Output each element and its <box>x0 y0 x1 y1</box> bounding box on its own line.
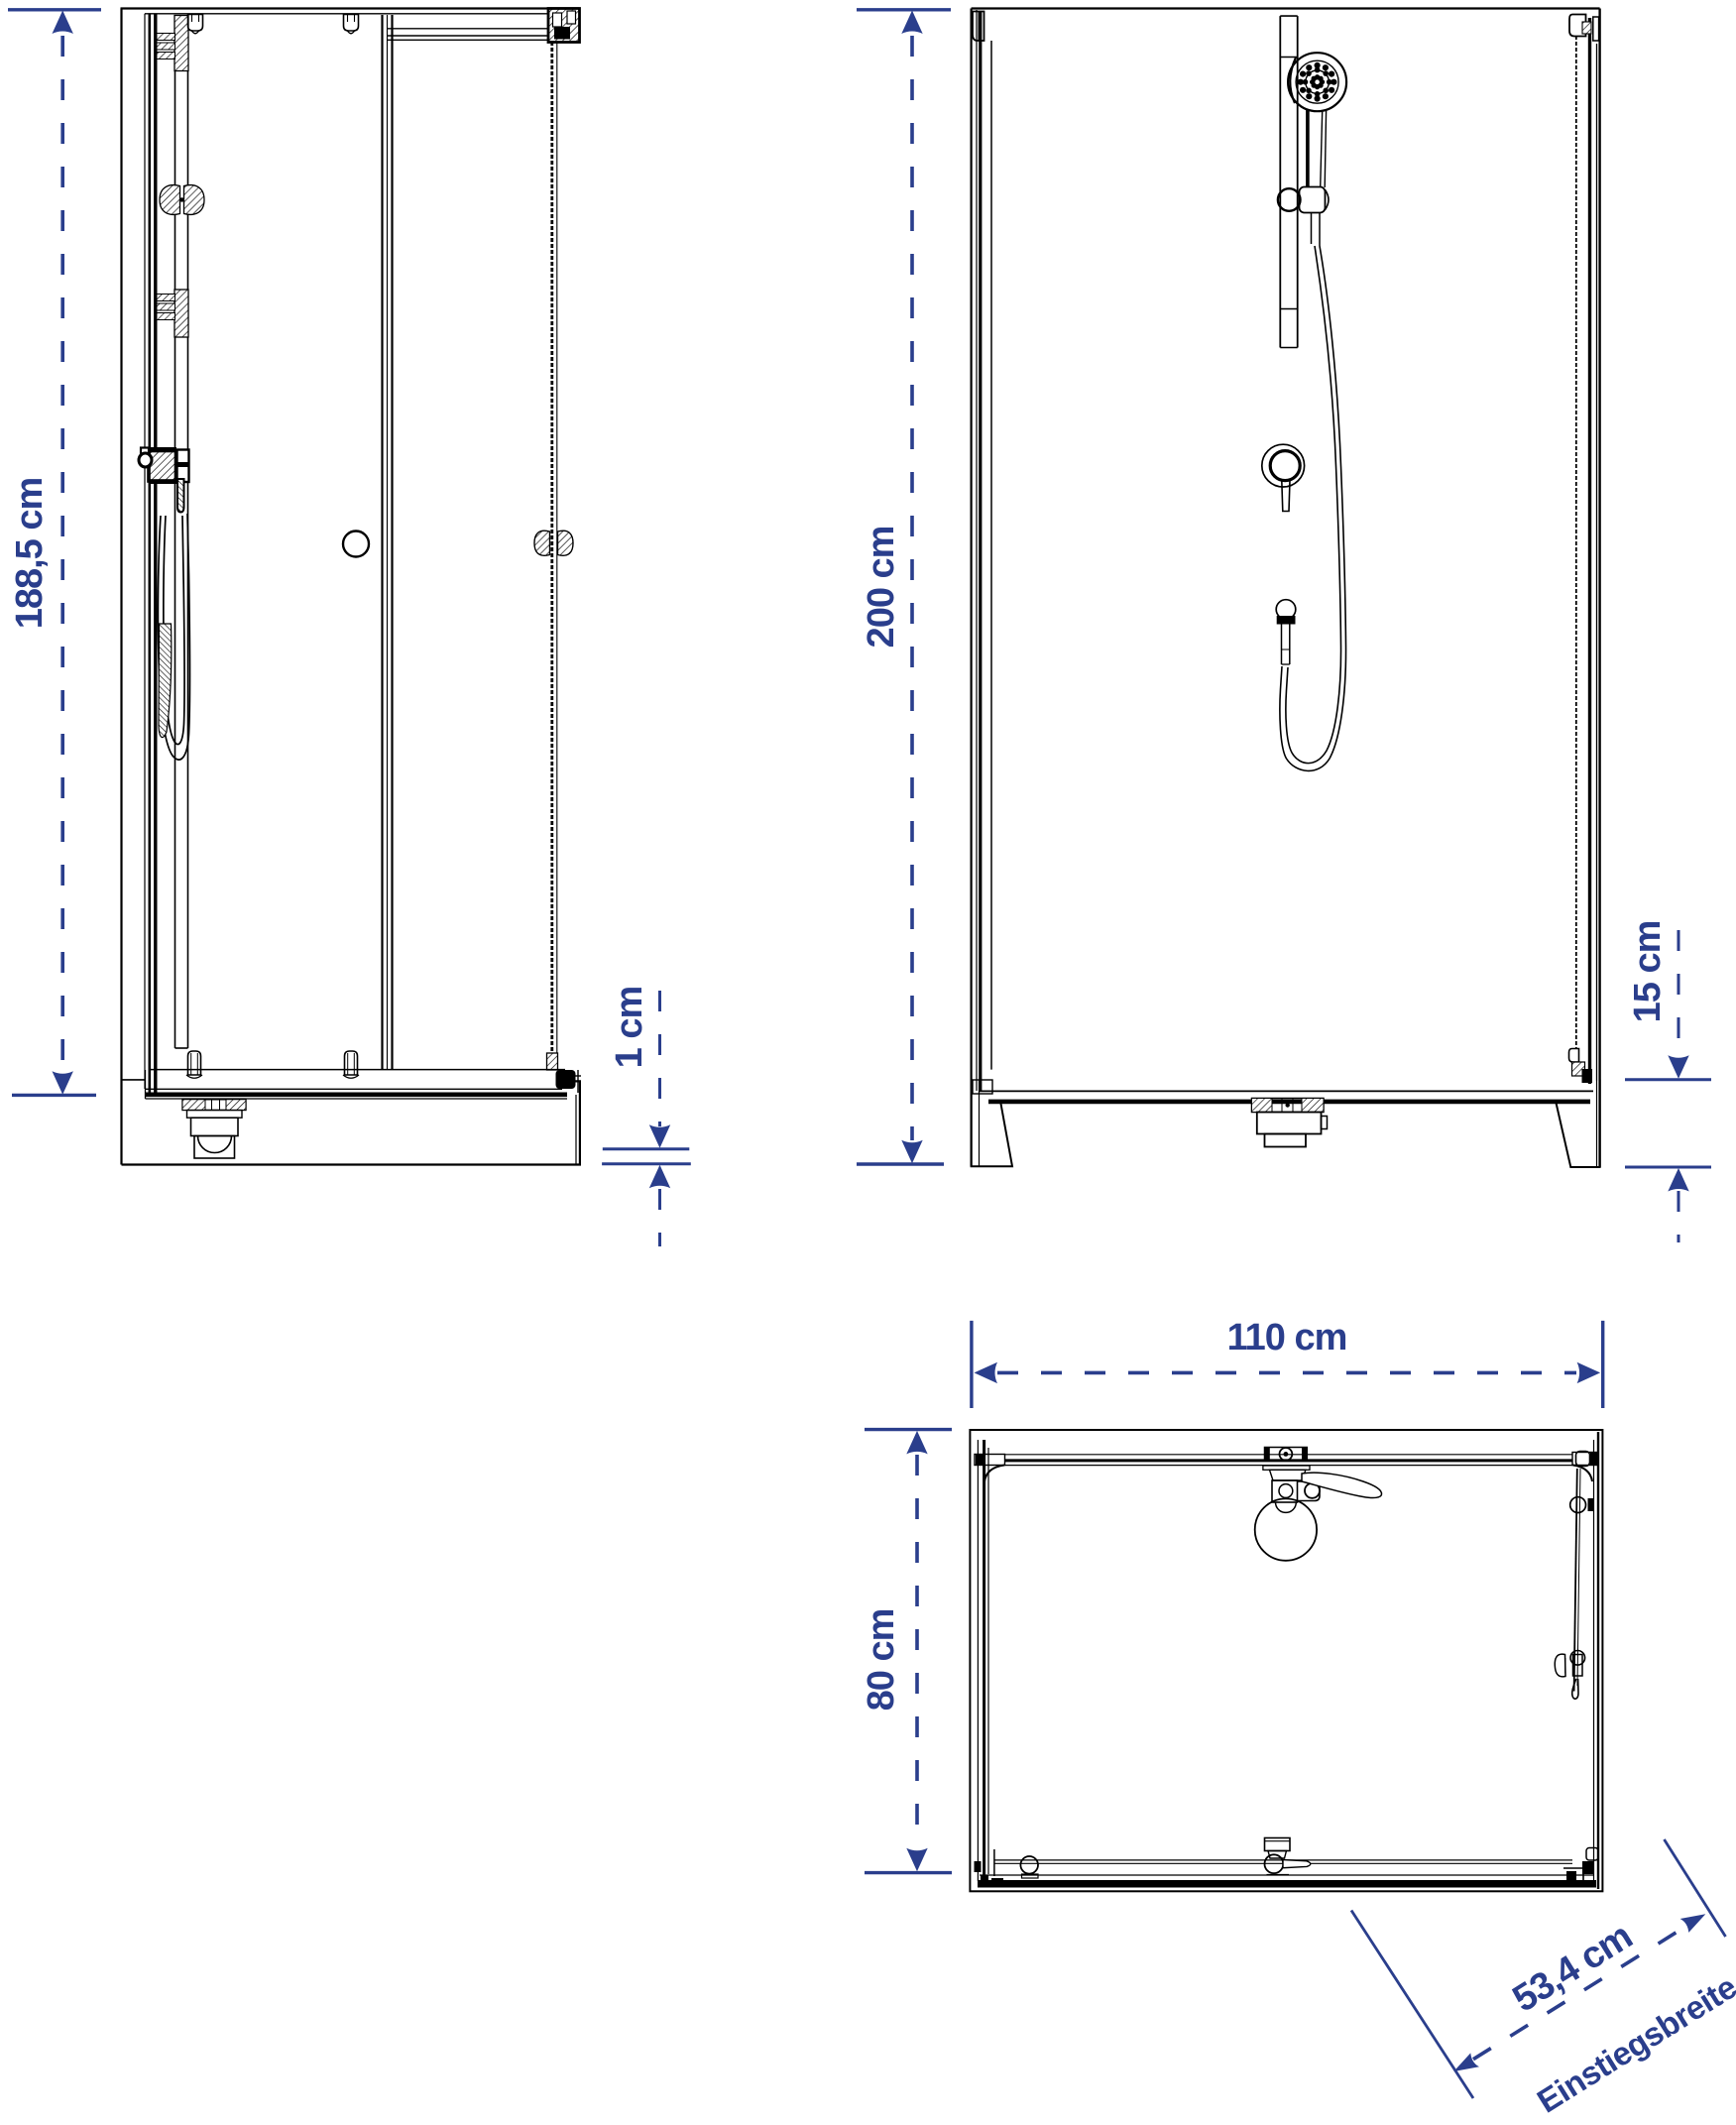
svg-text:1 cm: 1 cm <box>609 987 650 1069</box>
svg-text:188,5 cm: 188,5 cm <box>9 478 51 630</box>
svg-text:15 cm: 15 cm <box>1627 921 1669 1023</box>
svg-text:80 cm: 80 cm <box>861 1609 902 1712</box>
svg-text:200 cm: 200 cm <box>861 527 902 649</box>
svg-text:110 cm: 110 cm <box>1227 1317 1347 1358</box>
